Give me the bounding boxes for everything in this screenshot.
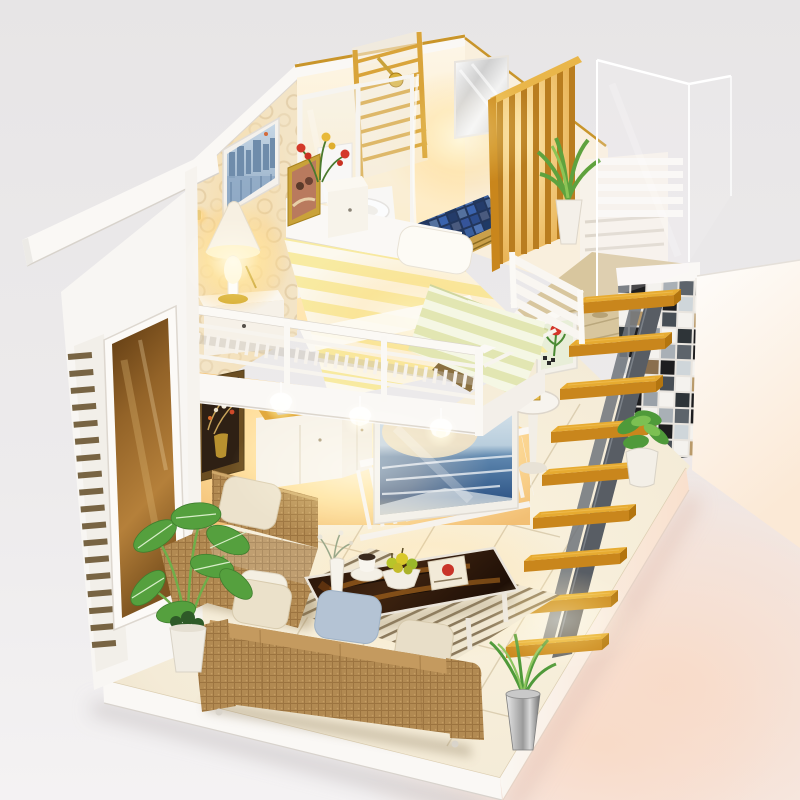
stair-plant-pot: [626, 448, 658, 487]
dollhouse-illustration: [0, 0, 800, 800]
painting-vase: [214, 433, 228, 458]
front-pillow-blue: [313, 589, 383, 645]
front-sofa-right-arm: [446, 658, 484, 740]
acrylic-front-panel: [597, 60, 689, 302]
book: [428, 556, 468, 590]
photo-of-miniature-dollhouse: [0, 0, 800, 800]
leafy-plant-pot: [170, 628, 206, 672]
headboard-cabinet: [322, 176, 368, 238]
